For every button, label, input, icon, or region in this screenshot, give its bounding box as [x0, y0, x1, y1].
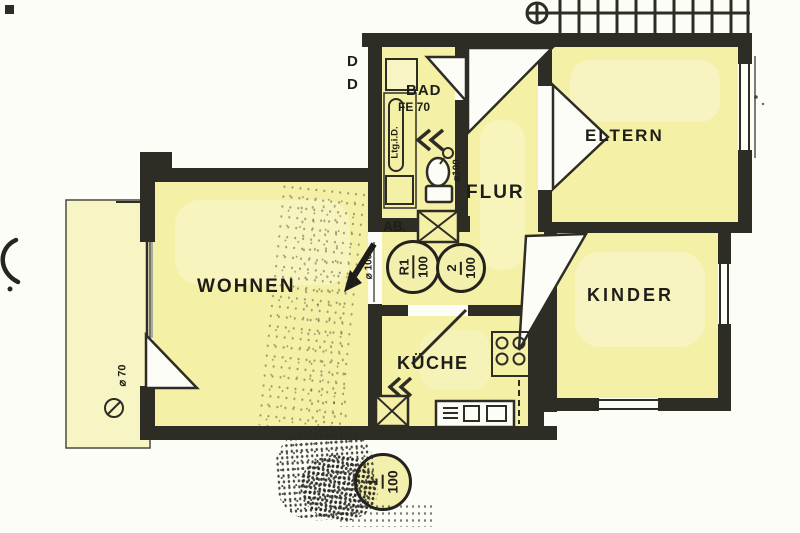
shaft-x-icon-kitchen	[376, 396, 408, 426]
wall-eltern-right-lower	[738, 150, 752, 233]
vent-r1-id: R1	[397, 256, 414, 279]
room-label-kueche: KÜCHE	[397, 353, 469, 374]
wall-eltern-left-lower	[538, 190, 552, 232]
vent-2-id: 2	[445, 261, 462, 274]
vent-1-id: 1	[366, 475, 384, 489]
sink-icon	[436, 401, 514, 427]
vent-circle-2-text: 2 100	[445, 257, 477, 279]
vent-circle-r1-text: R1 100	[397, 256, 429, 279]
room-label-flur: FLUR	[466, 182, 525, 204]
stairs-icon	[527, 0, 750, 33]
vent-r1-size: 100	[414, 256, 429, 278]
window-kinder-bottom	[599, 398, 658, 411]
wall-kinder-right-lower	[718, 324, 731, 411]
vent-1-size: 100	[384, 470, 400, 493]
door-letter-1: D	[347, 53, 358, 70]
vent-circle-1: 1 100	[354, 453, 412, 511]
wall-top	[362, 33, 752, 47]
room-label-kinder: KINDER	[587, 285, 674, 306]
shaft-label: AB.	[383, 219, 406, 234]
floor-plan: WOHNEN KÜCHE FLUR BAD FE 70 ELTERN KINDE…	[0, 0, 800, 533]
wall-kinder-right-upper	[718, 233, 731, 264]
vent-circle-1-text: 1 100	[366, 470, 400, 493]
door-kueche-opening	[408, 305, 468, 316]
vent-circle-2: 2 100	[436, 243, 486, 293]
vent-circle-r1: R1 100	[386, 240, 440, 294]
room-label-bad: BAD	[406, 82, 442, 99]
room-label-wohnen: WOHNEN	[197, 276, 296, 298]
wall-wohnen-top	[140, 168, 380, 182]
duct-note-label: Ltg.i.D.	[390, 97, 401, 189]
bad-window-label: FE 70	[398, 100, 430, 114]
scan-dot-topleft	[5, 5, 14, 14]
door-letter-2: D	[347, 76, 358, 93]
window-eltern-right	[738, 56, 755, 158]
wall-bad-left	[368, 33, 382, 232]
wall-kinder-bottom-right	[658, 398, 731, 411]
wall-eltern-kinder	[545, 222, 738, 233]
vent-2-size: 100	[462, 257, 477, 279]
wall-wohnen-left-upper	[140, 160, 155, 242]
wall-kueche-top-left	[382, 305, 408, 316]
pipe-label-toilet: ⌀100	[452, 148, 463, 194]
wall-eltern-right-upper	[738, 40, 752, 64]
room-label-eltern: ELTERN	[585, 126, 664, 146]
pipe-label-hall: ⌀ 100	[364, 239, 375, 295]
pipe-label-balcony: ⌀ 70	[116, 348, 129, 404]
window-kinder-right	[718, 264, 731, 324]
shaft-x-icon	[418, 211, 458, 242]
balcony-fill	[66, 200, 150, 448]
